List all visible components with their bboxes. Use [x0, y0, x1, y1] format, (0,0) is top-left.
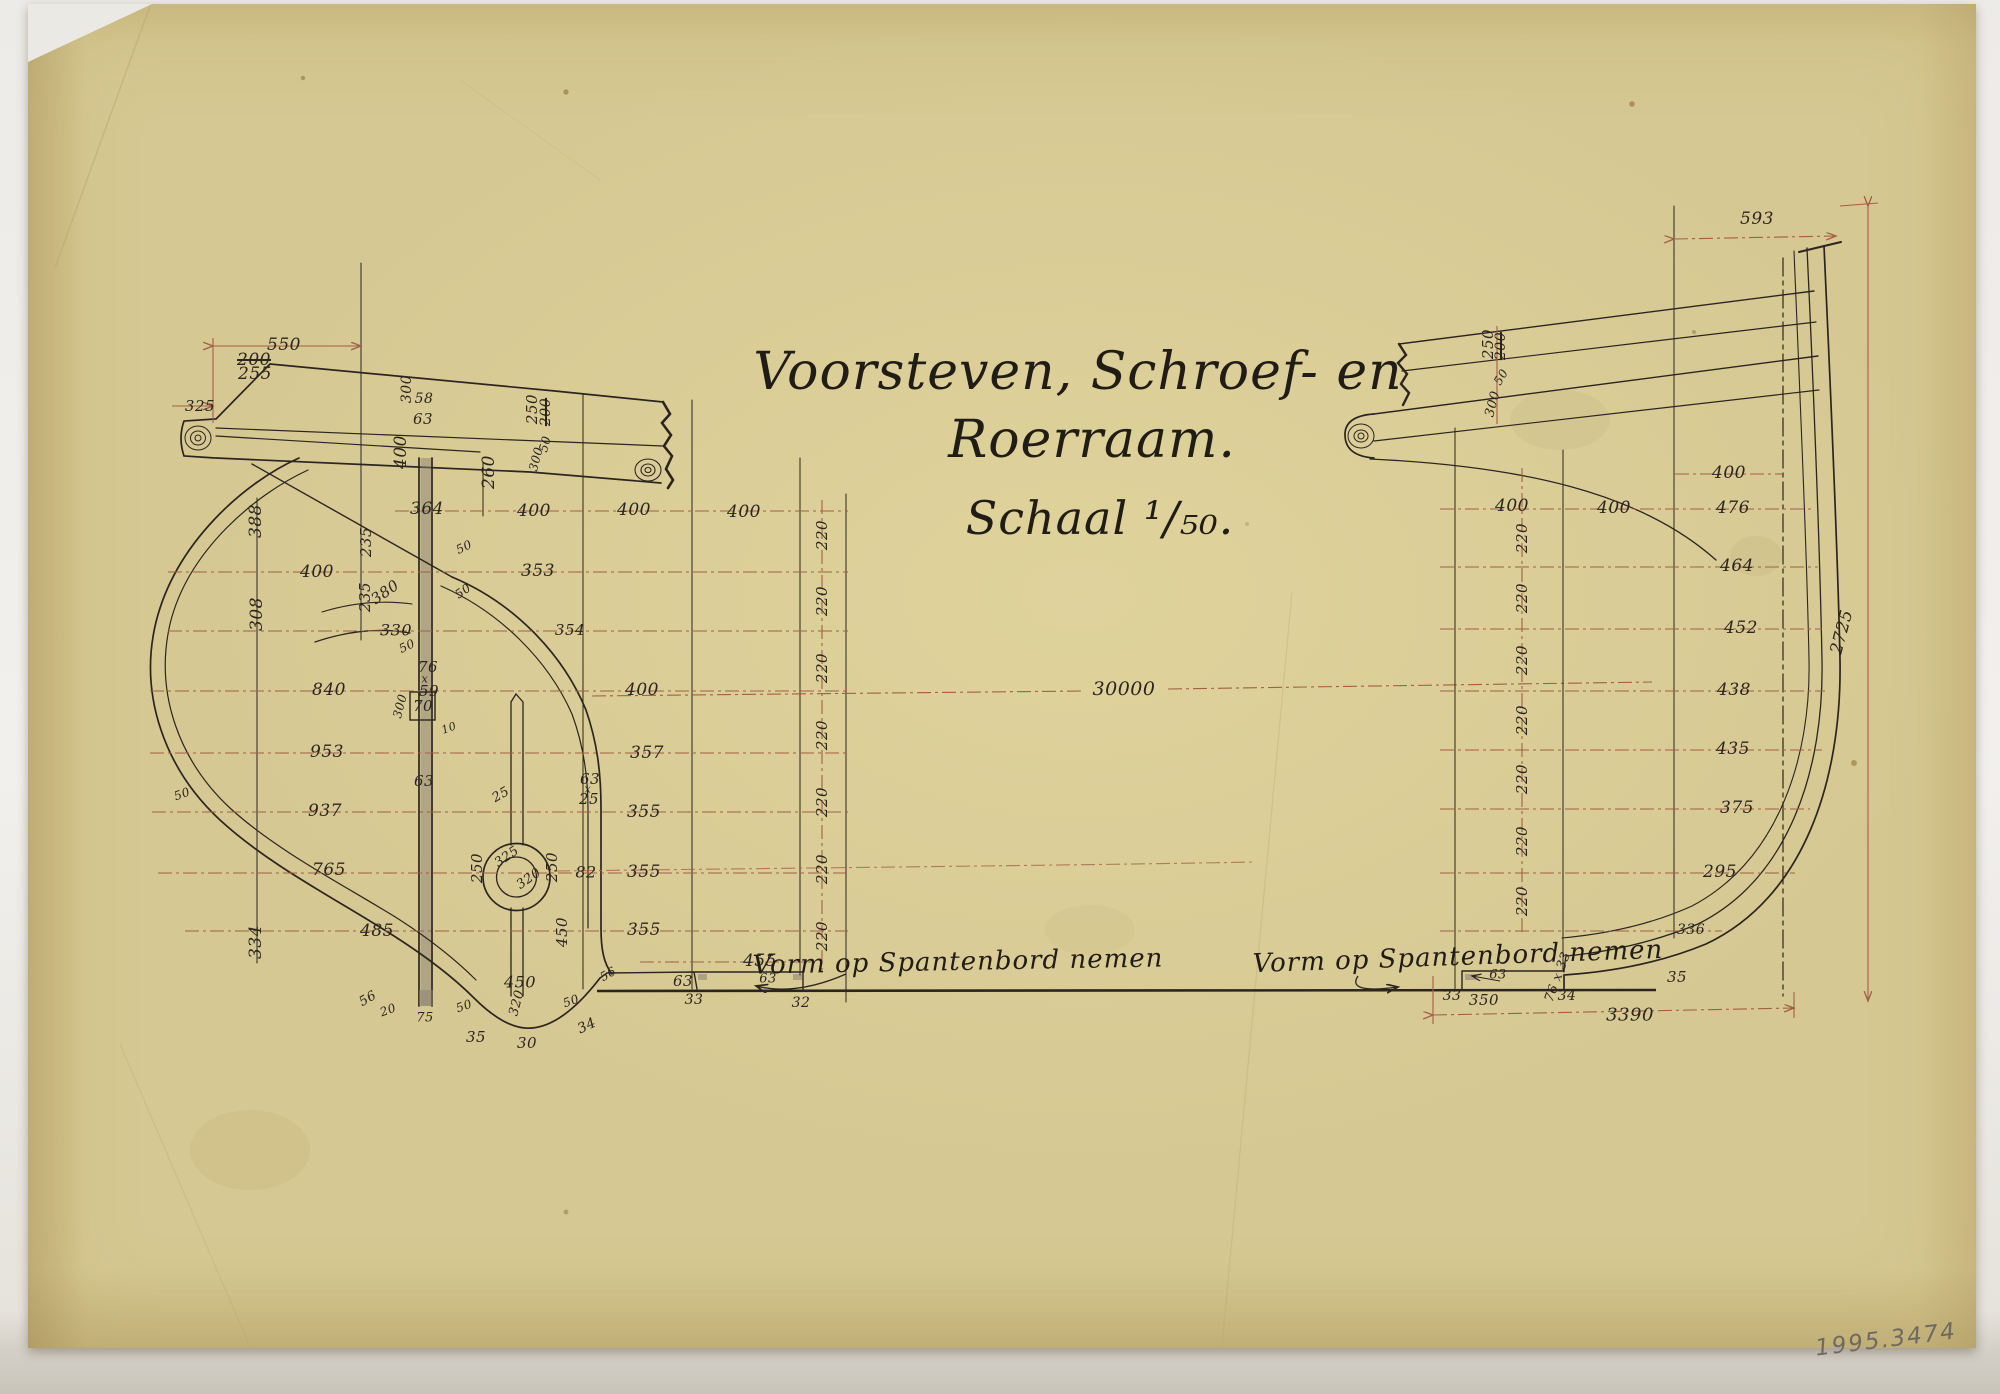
stem-rabbet [1562, 251, 1809, 938]
beam-left-end-lower [1345, 414, 1374, 458]
paper-stains [190, 76, 1857, 1215]
beam-left-end [181, 419, 215, 458]
bow-stem-linework [1345, 206, 1841, 996]
aperture-curve-inner [441, 586, 588, 928]
length-dim-3390 [1433, 1008, 1794, 1015]
stern-frame-linework [151, 263, 846, 1028]
propeller-boss-outer [483, 844, 550, 911]
keel-baseline [597, 990, 1656, 991]
linework-svg [0, 0, 2000, 1394]
beam-broken-end [662, 402, 673, 488]
stern-post-fill [421, 458, 432, 1006]
linework-layer [0, 0, 2000, 1394]
overall-dim-line-right [1168, 682, 1652, 689]
stern-profile-outer [151, 458, 600, 1028]
rudder-stock-slot [511, 702, 523, 996]
keel-plate [1462, 971, 1564, 989]
drawing-scale: Schaal ¹/₅₀. [966, 491, 1235, 545]
shaft-centerline [556, 862, 1256, 871]
scanned-drawing-sheet: 5502002553253005863400260250200300503644… [0, 0, 2000, 1394]
stern-frame-dimension-lines [150, 338, 1652, 973]
propeller-boss-inner [497, 857, 537, 897]
drawing-title-line1: Voorsteven, Schroef- en [753, 342, 1402, 402]
bow-stem-dimension-lines [1433, 203, 1878, 1024]
drawing-title-line2: Roerraam. [948, 410, 1236, 470]
overall-dim-line-left [592, 691, 1082, 696]
